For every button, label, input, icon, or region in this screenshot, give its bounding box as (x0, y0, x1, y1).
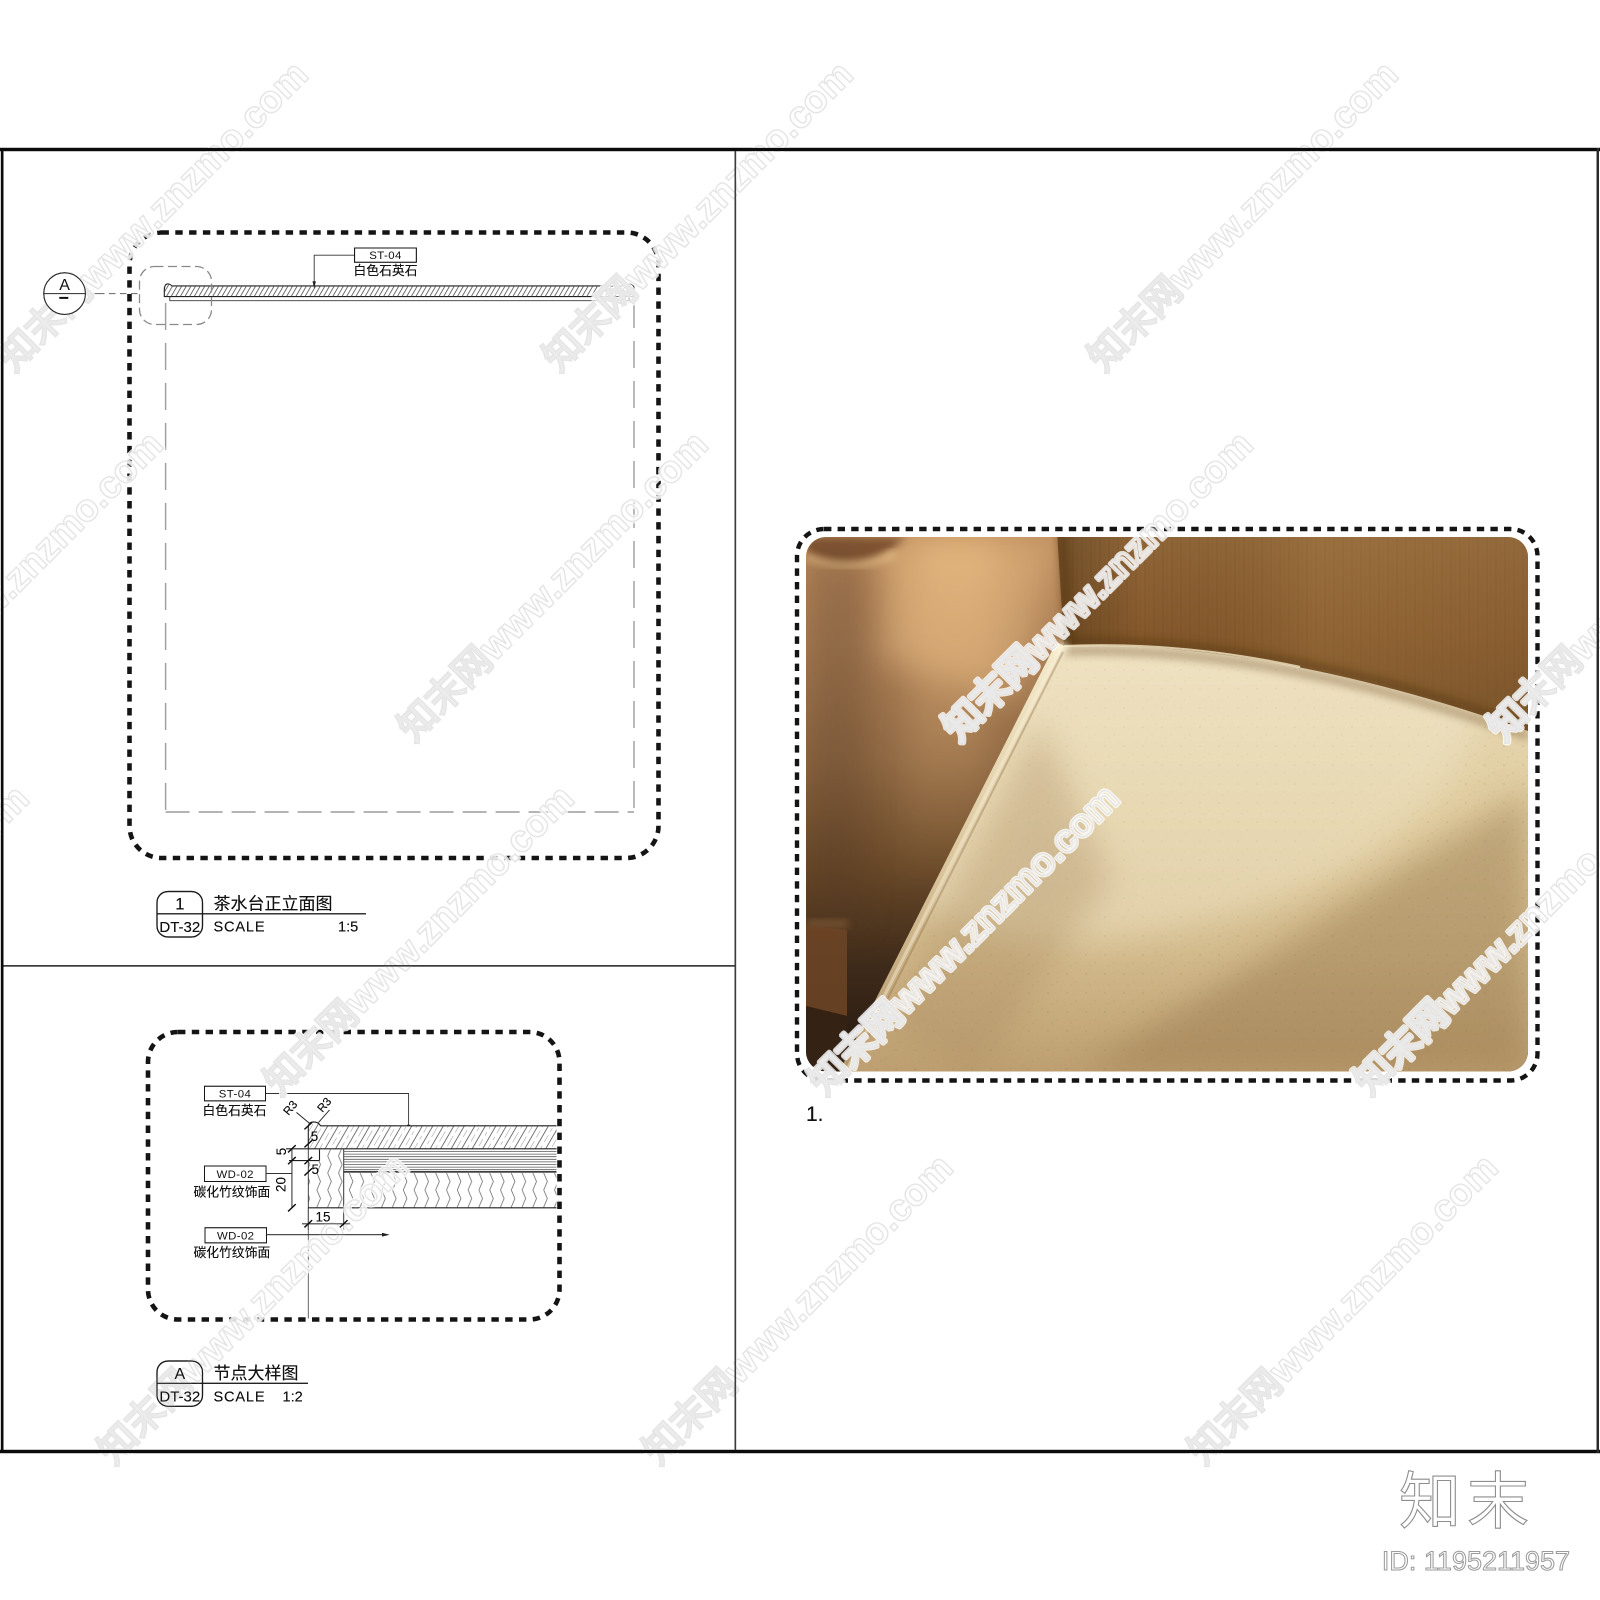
svg-text:R3: R3 (315, 1095, 334, 1115)
svg-text:知末网www.znzmo.com: 知末网www.znzmo.com (536, 54, 862, 380)
svg-text:知末: 知末 (1399, 1468, 1535, 1537)
svg-text:知末网www.znzmo.com: 知末网www.znzmo.com (1181, 1147, 1507, 1473)
svg-text:ID: 1195211957: ID: 1195211957 (1382, 1546, 1570, 1576)
svg-text:5: 5 (311, 1129, 318, 1144)
svg-text:SCALE: SCALE (214, 1389, 266, 1405)
svg-text:ST-04: ST-04 (219, 1089, 251, 1101)
svg-text:1: 1 (175, 896, 184, 914)
svg-text:碳化竹纹饰面: 碳化竹纹饰面 (194, 1245, 271, 1260)
svg-text:5: 5 (274, 1148, 289, 1155)
svg-text:知末网www.znzmo.com: 知末网www.znzmo.com (636, 1147, 962, 1473)
svg-text:1:2: 1:2 (283, 1389, 303, 1405)
svg-text:知末网www.znzmo.com: 知末网www.znzmo.com (1081, 54, 1407, 380)
svg-text:知末网www.znzmo.com: 知末网www.znzmo.com (0, 54, 316, 380)
svg-text:DT-32: DT-32 (159, 919, 200, 936)
svg-text:知末网www.znzmo.com: 知末网www.znzmo.com (0, 424, 171, 750)
svg-text:20: 20 (274, 1177, 289, 1192)
svg-text:白色石英石: 白色石英石 (203, 1103, 267, 1118)
svg-text:A: A (174, 1366, 185, 1383)
svg-text:15: 15 (316, 1209, 331, 1224)
svg-text:SCALE: SCALE (214, 920, 266, 936)
svg-text:碳化竹纹饰面: 碳化竹纹饰面 (194, 1185, 271, 1200)
svg-text:知末网www.znzmo.com: 知末网www.znzmo.com (257, 778, 583, 1104)
svg-text:WD-02: WD-02 (217, 1230, 254, 1242)
svg-text:ST-04: ST-04 (369, 250, 401, 262)
svg-text:节点大样图: 节点大样图 (214, 1364, 299, 1383)
svg-text:5: 5 (312, 1162, 319, 1177)
svg-text:茶水台正立面图: 茶水台正立面图 (214, 895, 333, 914)
svg-text:1.: 1. (806, 1103, 824, 1126)
svg-text:1:5: 1:5 (338, 920, 358, 936)
svg-text:白色石英石: 白色石英石 (354, 263, 418, 278)
svg-text:知末网www.znzmo.com: 知末网www.znzmo.com (391, 424, 717, 750)
svg-text:A: A (59, 277, 70, 294)
svg-text:DT-32: DT-32 (159, 1388, 200, 1405)
svg-text:知末网www.znzmo.com: 知末网www.znzmo.com (0, 778, 37, 1104)
svg-text:WD-02: WD-02 (216, 1169, 253, 1181)
